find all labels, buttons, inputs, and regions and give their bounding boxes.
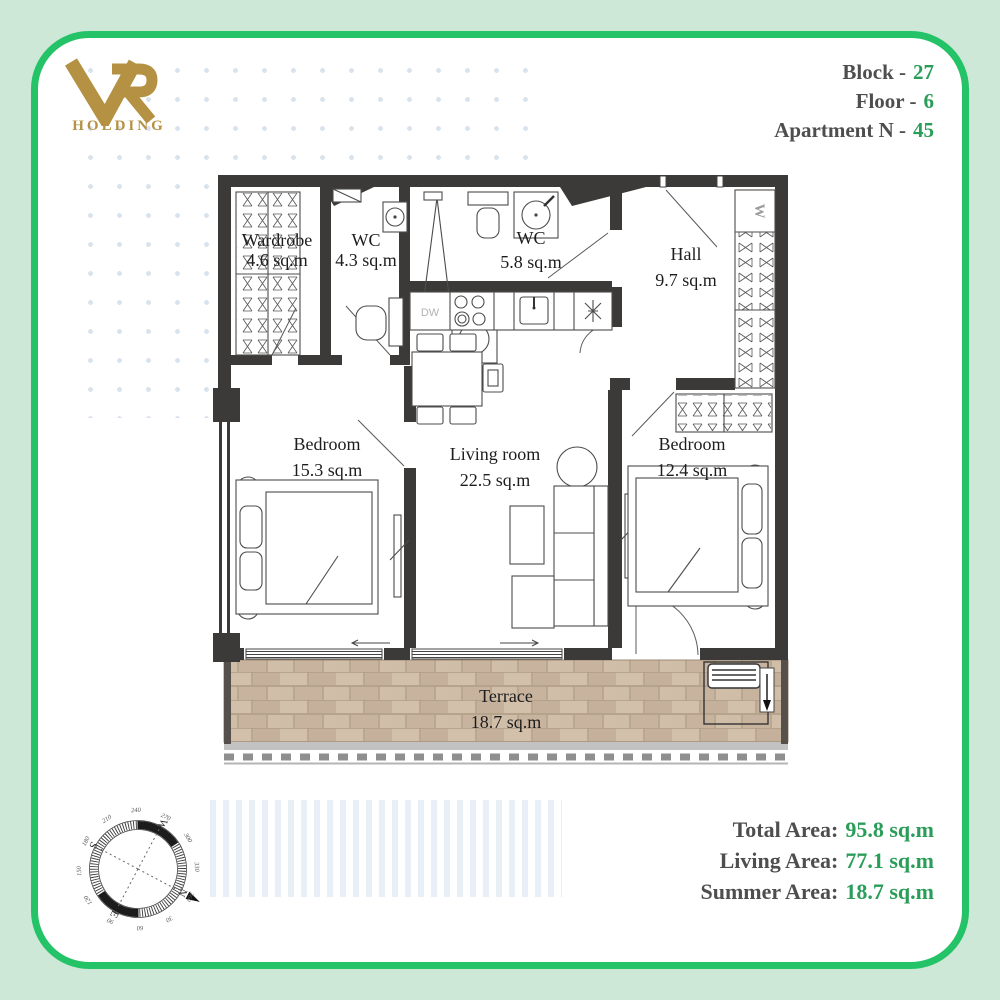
- bed-icon: [236, 480, 378, 614]
- compass-icon: N S E W 30 60 90 120 150 180 210 240 270…: [58, 790, 218, 950]
- living-area-value: 77.1 sq.m: [845, 848, 934, 873]
- summer-area-line: Summer Area:18.7 sq.m: [700, 876, 934, 907]
- vr-holding-logo: [64, 56, 184, 126]
- total-area-line: Total Area:95.8 sq.m: [700, 814, 934, 845]
- summer-area-label: Summer Area:: [700, 879, 838, 904]
- summer-area-value: 18.7 sq.m: [845, 879, 934, 904]
- pillow-icon: [240, 552, 262, 590]
- svg-text:30: 30: [164, 913, 175, 923]
- room-name: Bedroom: [294, 434, 361, 454]
- room-area: 18.7 sq.m: [471, 712, 542, 732]
- dishwasher-label: DW: [421, 307, 440, 319]
- chair-icon: [450, 334, 476, 351]
- stripe-pattern: [210, 800, 562, 897]
- hall-wardrobe-marker: W: [751, 204, 767, 219]
- room-area: 5.8 sq.m: [500, 252, 562, 272]
- room-area: 4.6 sq.m: [246, 250, 308, 270]
- apartment-label: Apartment N -: [774, 118, 906, 142]
- svg-text:240: 240: [131, 807, 142, 814]
- svg-text:150: 150: [76, 865, 83, 876]
- apartment-line: Apartment N -45: [774, 116, 934, 145]
- room-name: Living room: [450, 444, 541, 464]
- flyer-page: { "brand": { "monogram": "VR", "name": "…: [0, 0, 1000, 1000]
- kitchen-counter: DW: [410, 292, 612, 330]
- room-area: 9.7 sq.m: [655, 270, 717, 290]
- total-area-label: Total Area:: [733, 817, 839, 842]
- room-area: 4.3 sq.m: [335, 250, 397, 270]
- room-name: Terrace: [479, 686, 533, 706]
- ac-unit-icon: [708, 664, 760, 688]
- room-name: Wardrobe: [242, 230, 313, 250]
- svg-text:330: 330: [193, 861, 200, 873]
- living-area-label: Living Area:: [720, 848, 839, 873]
- floor-label: Floor -: [856, 89, 917, 113]
- chair-icon: [417, 407, 443, 424]
- svg-text:60: 60: [136, 924, 143, 931]
- pillow-icon: [240, 506, 262, 548]
- room-area: 15.3 sq.m: [292, 460, 363, 480]
- room-area: 12.4 sq.m: [657, 460, 728, 480]
- total-area-value: 95.8 sq.m: [845, 817, 934, 842]
- floor-plan: DW W: [210, 165, 800, 765]
- room-name: WC: [352, 230, 381, 250]
- drain-bracket-icon: [760, 668, 774, 712]
- floor-value: 6: [924, 89, 935, 113]
- kitchen-sink-icon: [520, 297, 548, 324]
- area-summary: Total Area:95.8 sq.m Living Area:77.1 sq…: [700, 814, 934, 907]
- block-line: Block -27: [774, 58, 934, 87]
- terrace-railing: [224, 742, 788, 750]
- svg-text:300: 300: [182, 831, 194, 844]
- chair-icon: [417, 334, 443, 351]
- coffee-table-icon: [510, 506, 544, 564]
- svg-text:120: 120: [82, 893, 94, 906]
- highchair-icon: [483, 364, 503, 392]
- apartment-value: 45: [913, 118, 934, 142]
- svg-text:210: 210: [101, 813, 114, 825]
- room-name: Bedroom: [659, 434, 726, 454]
- block-label: Block -: [842, 60, 906, 84]
- room-area: 22.5 sq.m: [460, 470, 531, 490]
- pillow-icon: [742, 538, 762, 588]
- block-value: 27: [913, 60, 934, 84]
- bed-icon: [628, 466, 768, 606]
- chair-icon: [450, 407, 476, 424]
- wardrobe-rack-icon: [236, 192, 300, 355]
- apartment-header-info: Block -27 Floor -6 Apartment N -45: [774, 58, 934, 145]
- floor-line: Floor -6: [774, 87, 934, 116]
- plant-icon: [557, 447, 597, 487]
- bedroom1-furniture: [236, 477, 378, 619]
- logo-wordmark: HOLDING: [62, 118, 176, 135]
- room-name: WC: [517, 228, 546, 248]
- pillow-icon: [742, 484, 762, 534]
- room-name: Hall: [671, 244, 702, 264]
- living-area-line: Living Area:77.1 sq.m: [700, 845, 934, 876]
- washing-machine-icon: [383, 202, 407, 232]
